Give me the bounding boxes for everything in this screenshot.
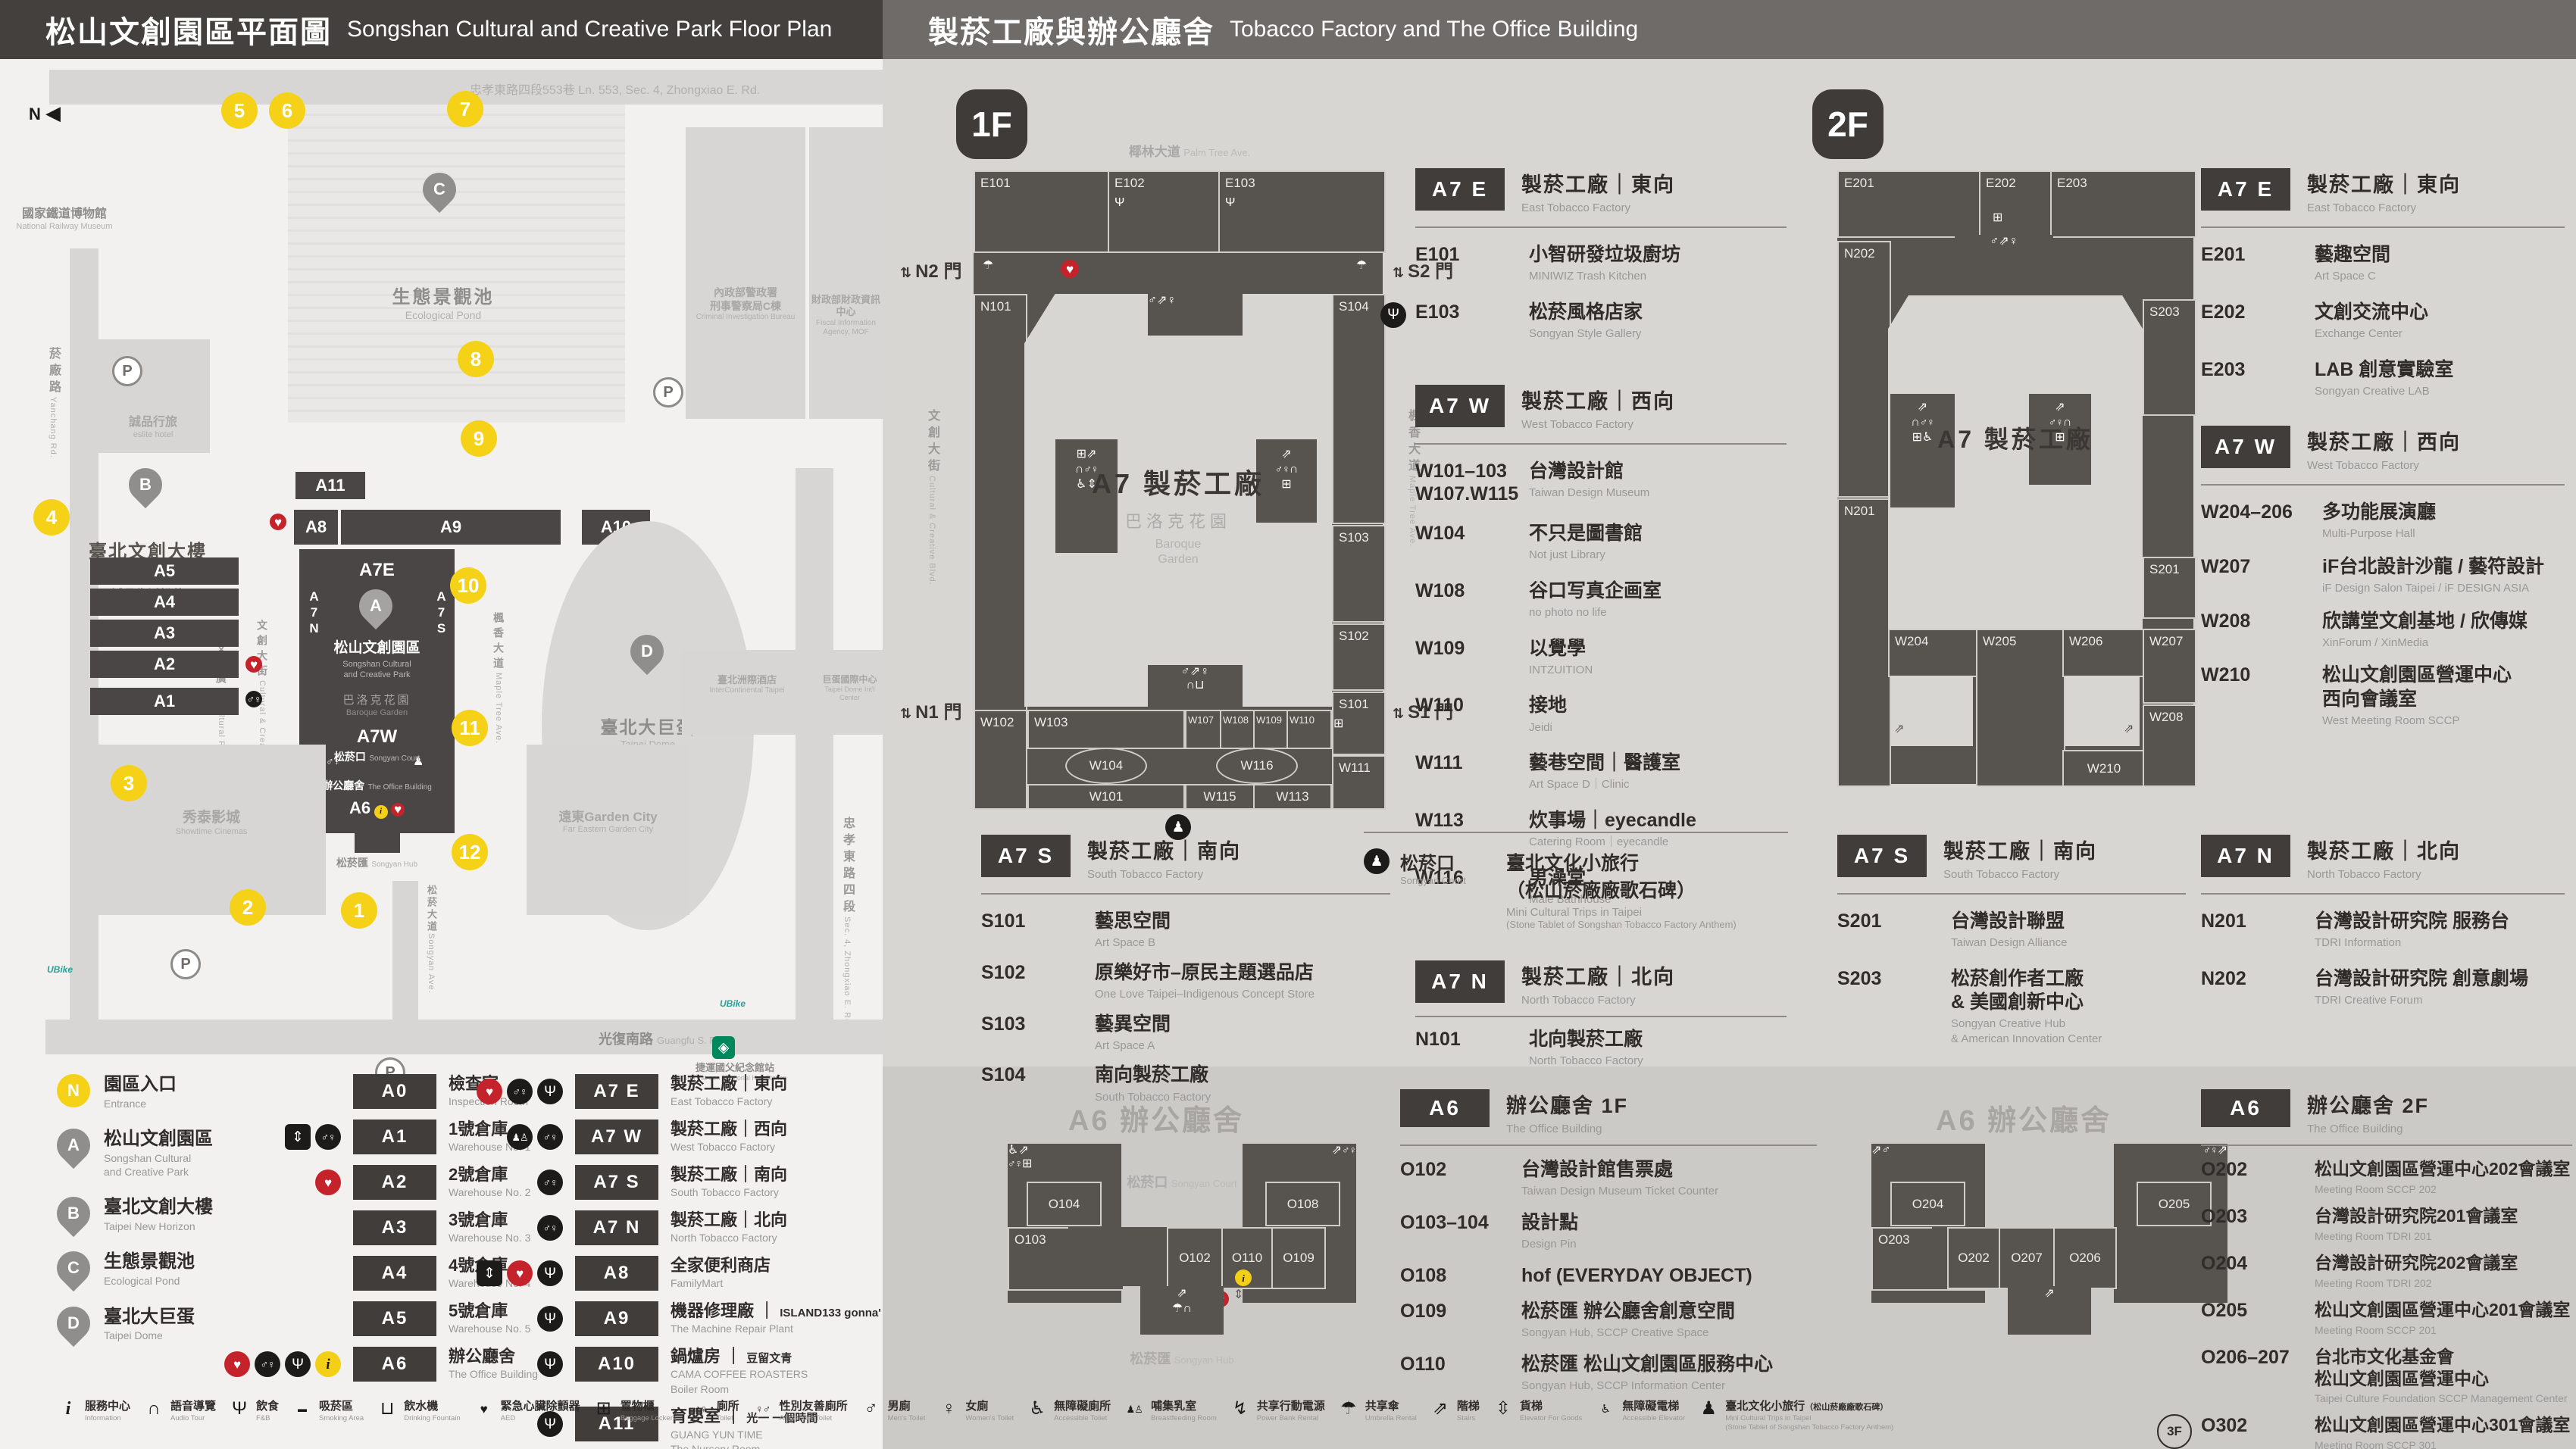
umbrella-icon	[1356, 260, 1367, 272]
facility-icon	[1123, 1397, 1146, 1420]
room-list-item: 3F O302 松山文創園區營運中心301會議室 Meeting Room SC…	[2201, 1414, 2572, 1449]
locker-icon	[1333, 718, 1343, 730]
drinking-icon	[1195, 679, 1204, 692]
facility-icon	[537, 1306, 563, 1332]
street-songyan-ave	[392, 881, 418, 1021]
entrance-12: 12	[452, 834, 488, 870]
room-s103: S103	[1332, 525, 1386, 623]
legend-icon-item: 緊急心臟除顫器 AED	[473, 1397, 580, 1422]
parking-icon: P	[112, 356, 142, 386]
facility-icon	[473, 1397, 496, 1420]
block-cib	[686, 127, 805, 419]
entrance-7: 7	[447, 91, 483, 127]
facility-icon	[1337, 1397, 1360, 1420]
entrance-1: 1	[341, 892, 377, 929]
building-a5: A5	[90, 557, 239, 585]
room-list-item: W110 接地 Jeidi	[1415, 694, 1787, 735]
maple-ave-label: 楓香大道Maple Tree Ave.	[491, 612, 506, 744]
room-w101: W101	[1027, 784, 1185, 810]
entrance-2: 2	[230, 889, 266, 926]
toilet-icon	[1342, 1145, 1356, 1155]
stairs-icon	[1190, 666, 1200, 678]
room-list-item: S201 台灣設計聯盟 Taiwan Design Alliance	[1837, 910, 2186, 951]
building-code-badge: A9	[575, 1301, 658, 1336]
facility-icon	[477, 1260, 502, 1286]
room-s102: S102	[1332, 623, 1386, 691]
street-guangfu	[45, 1020, 883, 1054]
legend-row: A7 N 製菸工廠｜北向 ｜ North Tobacco Factory	[474, 1210, 886, 1245]
room-w102: W102	[974, 710, 1027, 810]
accessible-icon	[1008, 1145, 1018, 1157]
room-w109: W109	[1253, 710, 1288, 749]
facility-icon	[315, 1170, 341, 1195]
street-yanchang-label: 菸廠路Yanchang Rd.	[44, 347, 62, 458]
building-a7-name: 松山文創園區 Songshan Cultural and Creative Pa…	[299, 639, 455, 680]
building-code-badge: A4	[353, 1256, 436, 1291]
room-e201: E201	[1837, 170, 1982, 238]
room-n202: N202	[1837, 241, 1891, 498]
legend-pin-row: D 臺北大巨蛋 Taipei Dome	[57, 1307, 246, 1343]
facility-icon	[537, 1351, 563, 1377]
room-list-item: E103 松菸風格店家 Songyan Style Gallery	[1415, 301, 1787, 342]
legend-pins: N 園區入口 Entrance A 松山文創園區 Songshan Cultur…	[57, 1074, 246, 1361]
room-o104: O104	[1027, 1182, 1102, 1226]
legend-pin-icon: C	[50, 1244, 97, 1291]
facility-icon	[592, 1397, 615, 1420]
room-list-item: E202 文創交流中心 Exchange Center	[2201, 301, 2565, 342]
facility-icon	[57, 1397, 80, 1420]
room-s203: S203	[2143, 299, 2196, 416]
room-list-item: W204–206 多功能展演廳 Multi-Purpose Hall	[2201, 501, 2565, 542]
facility-icon	[228, 1397, 251, 1420]
room-list-item: W109 以覺學 INTZUITION	[1415, 637, 1787, 678]
room-list-item: W207 iF台北設計沙龍 / 藝符設計 iF Design Salon Tai…	[2201, 555, 2565, 596]
building-code-badge: A0	[353, 1074, 436, 1109]
floor-2f-badge: 2F	[1812, 89, 1884, 159]
room-list-item: O108 hof (EVERYDAY OBJECT)	[1400, 1264, 1817, 1288]
mens-icon	[1881, 1145, 1890, 1157]
building-a3: A3	[90, 620, 239, 647]
womens-icon	[1167, 295, 1176, 307]
room-w107: W107	[1185, 710, 1221, 749]
building-a7-a7n-label: A7N	[306, 589, 321, 637]
building-code-badge: A3	[353, 1210, 436, 1245]
legend-pin-row: A 松山文創園區 Songshan Cultural and Creative …	[57, 1129, 246, 1179]
building-code-badge: A5	[353, 1301, 436, 1336]
room-o206: O206	[2053, 1227, 2117, 1289]
section-2f-a7e: A7 E 製菸工廠｜東向East Tobacco Factory E201 藝趣…	[2201, 168, 2565, 415]
pin-b: B	[122, 461, 169, 508]
facility-icon-legend: 服務中心 Information 語音導覽 Audio Tour 飲食 F&B	[57, 1397, 1633, 1432]
f2-open-cell	[2065, 676, 2140, 746]
room-e203: E203	[2050, 170, 2196, 238]
building-code-badge: A7 S	[575, 1165, 658, 1200]
elevator-icon	[1233, 1289, 1243, 1301]
room-n201: N201	[1837, 498, 1891, 787]
room-w208: W208	[2143, 704, 2196, 787]
room-w111: W111	[1332, 755, 1386, 810]
f1-garden-label: 巴洛克花園 Baroque Garden	[1024, 511, 1332, 567]
street-zhongxiao	[796, 468, 833, 1020]
legend-pin-row: C 生態景觀池 Ecological Pond	[57, 1251, 246, 1288]
street-zhongxiao-label: 忠孝東路四段Sec. 4, Zhongxiao E. Rd.	[838, 817, 856, 1027]
building-a6-stub	[355, 833, 400, 853]
room-o207: O207	[1999, 1227, 2055, 1289]
aed-icon	[391, 803, 405, 817]
room-w103: W103	[1027, 710, 1185, 749]
gate-n1: N1 門	[900, 697, 961, 723]
street-songyan-ave-label: 松菸大道Songyan Ave.	[424, 885, 439, 994]
section-title: 製菸工廠與辦公廳舍	[928, 8, 1215, 52]
legend-icon-item: 語音導覽 Audio Tour	[142, 1397, 216, 1422]
facility-icon	[537, 1079, 563, 1104]
f1-top-stub	[1148, 294, 1243, 336]
building-a1: A1	[90, 688, 239, 715]
a6f1-stub	[1140, 1286, 1224, 1335]
ecological-pond	[288, 105, 625, 423]
f1-blvd-label: 文創大街Cultural & Creative Blvd.	[923, 409, 941, 586]
stairs-icon	[2124, 723, 2134, 735]
room-list-item: W111 藝巷空間｜醫護室 Art Space D｜Clinic	[1415, 751, 1787, 792]
facility-icon	[537, 1215, 563, 1241]
room-w210: W210	[2062, 750, 2146, 787]
toilet-icon	[245, 691, 262, 707]
room-w204: W204	[1888, 629, 1979, 677]
womens-icon	[1200, 666, 1209, 678]
legend-icon-item: 男廁 Men's Toilet	[860, 1397, 926, 1422]
f1-palm-ave-label: 椰林大道 Palm Tree Ave.	[1099, 144, 1280, 161]
legend-row: A9 機器修理廠 ｜ ISLAND133 gonna' The Machine …	[474, 1301, 886, 1336]
block-fia	[809, 127, 883, 419]
room-list-item: O205 松山文創園區營運中心201會議室 Meeting Room SCCP …	[2201, 1299, 2572, 1337]
f1-center-title: A7 製菸工廠	[1024, 462, 1332, 501]
stairs-icon	[2044, 1288, 2054, 1300]
room-list-item: S102 原樂好市–原民主題選品店 One Love Taipei–Indige…	[981, 961, 1390, 1002]
audio-icon	[1183, 1303, 1192, 1315]
room-n101: N101	[974, 294, 1027, 711]
section-1f-a7e: A7 E 製菸工廠｜東向East Tobacco Factory E101 小智…	[1415, 168, 1787, 358]
block-garden-city-label: 遠東Garden City Far Eastern Garden City	[527, 809, 689, 835]
room-list-item: S103 藝異空間 Art Space A	[981, 1013, 1390, 1054]
stairs-icon	[1999, 236, 2009, 248]
section-a6-2f: A6 辦公廳舍 2FThe Office Building O202 松山文創園…	[2201, 1089, 2572, 1449]
compass-north: N ◀	[29, 101, 61, 125]
section-2f-a7s: A7 S 製菸工廠｜南向South Tobacco Factory S201 台…	[1837, 835, 2186, 1063]
floor-1f-map: E101 E102 E103 N101 S104 S103 S102 S101 …	[974, 170, 1383, 807]
building-a4: A4	[90, 589, 239, 616]
legend-pin-row: N 園區入口 Entrance	[57, 1074, 246, 1110]
locker-icon	[1077, 448, 1086, 461]
legend-icon-item: 服務中心 Information	[57, 1397, 130, 1422]
legend-icon-item: 女廁 Women's Toilet	[937, 1397, 1014, 1422]
building-code-badge: A7 W	[575, 1120, 658, 1154]
block-intercontinental-label: 臺北洲際酒店 InterContinental Taipei	[682, 674, 812, 696]
aed-icon	[245, 656, 262, 673]
room-list-item: S101 藝思空間 Art Space B	[981, 910, 1390, 951]
info-icon	[1235, 1269, 1252, 1286]
facility-icon	[315, 1351, 341, 1377]
header-right: 製菸工廠與辦公廳舍 Tobacco Factory and The Office…	[883, 0, 2576, 59]
f2-top-stub	[1955, 235, 2053, 280]
room-o204: O204	[1890, 1182, 1965, 1226]
section-2f-a7w: A7 W 製菸工廠｜西向West Tobacco Factory W204–20…	[2201, 426, 2565, 742]
room-s201: S201	[2143, 557, 2196, 619]
block-dome-intl-label: 巨蛋國際中心 Taipei Dome Int'l Center	[817, 674, 883, 703]
locker-icon	[1022, 1158, 1032, 1170]
facility-icon	[507, 1079, 533, 1104]
header-left: 松山文創園區平面圖 Songshan Cultural and Creative…	[0, 0, 883, 59]
facility-icon	[224, 1351, 250, 1377]
room-list-item: O110 松菸匯 松山文創園區服務中心 Songyan Hub, SCCP In…	[1400, 1353, 1817, 1394]
facility-icon	[1380, 302, 1406, 328]
legend-pin-icon: N	[57, 1074, 90, 1107]
legend-row: A7 W 製菸工廠｜西向 ｜ West Tobacco Factory	[474, 1120, 886, 1154]
stairs-icon	[1332, 1145, 1342, 1157]
ubike-mark: UBike	[47, 964, 73, 975]
audio-icon	[1186, 679, 1195, 692]
room-w104: W104	[1065, 748, 1147, 784]
parking-icon: P	[170, 949, 201, 979]
room-list-item: E101 小智研發垃圾廚坊 MINIWIZ Trash Kitchen	[1415, 243, 1787, 284]
legend-row: A8 全家便利商店 ｜ FamilyMart	[474, 1256, 886, 1291]
a6-2f-map: A6 辦公廳舍 O204 O203 O205 O202 O207 O206	[1849, 1089, 2250, 1377]
aed-icon	[1061, 260, 1079, 278]
room-list-item: O204 台灣設計研究院202會議室 Meeting Room TDRI 202	[2201, 1252, 2572, 1290]
legend-row: A10 鍋爐房 ｜ 豆留文青 CAMA COFFEE ROASTERS Boil…	[474, 1347, 886, 1396]
umbrella-icon	[1172, 1303, 1183, 1315]
building-code-badge: A7 N	[575, 1210, 658, 1245]
facility-icon	[291, 1397, 314, 1420]
facility-icon	[860, 1397, 883, 1420]
room-o202: O202	[1947, 1227, 2000, 1289]
metro-logo	[712, 1036, 735, 1059]
section-1f-a7n: A7 N 製菸工廠｜北向North Tobacco Factory N101 北…	[1415, 960, 1787, 1075]
floor-2f-map: E201 E202 E203 N202 N201 S203 S201 A7 製菸…	[1837, 170, 2193, 784]
entrance-8: 8	[458, 341, 494, 377]
legend-icon-item: 吸菸區 Smoking Area	[291, 1397, 364, 1422]
facility-icon	[285, 1124, 311, 1150]
block-cib-label: 內政部警政署 刑事警察局C棟 Criminal Investigation Bu…	[686, 286, 805, 323]
facility-icon	[376, 1397, 399, 1420]
stairs-icon	[2055, 401, 2065, 414]
a6f1-hub-label: 松菸匯 Songyan Hub	[1121, 1351, 1243, 1368]
womens-icon	[2009, 236, 2018, 248]
facility-icon	[507, 1124, 533, 1150]
stairs-icon	[1157, 295, 1167, 307]
parking-icon: P	[653, 377, 683, 408]
compass-arrow-icon: ◀	[45, 101, 61, 124]
entrance-6: 6	[269, 92, 305, 129]
entrance-4: 4	[33, 499, 70, 536]
legend-icon-item: 置物櫃 Baggage Lockers	[592, 1397, 677, 1422]
legend-icon-item: 飲食 F&B	[228, 1397, 279, 1422]
mens-icon	[1990, 236, 1999, 248]
room-list-item: O102 台灣設計館售票處 Taiwan Design Museum Ticke…	[1400, 1158, 1817, 1199]
room-list-item: W104 不只是圖書館 Not just Library	[1415, 522, 1787, 563]
street-top-label: 忠孝東路四段553巷 Ln. 553, Sec. 4, Zhongxiao E.…	[470, 80, 879, 98]
aed-icon	[270, 514, 286, 530]
facility-icon	[537, 1124, 563, 1150]
gate-n2: N2 門	[900, 256, 961, 283]
restaurant-icon	[1114, 197, 1124, 209]
room-list-item: W210 松山文創園區營運中心西向會議室 West Meeting Room S…	[2201, 664, 2565, 728]
page-title: 松山文創園區平面圖	[45, 8, 332, 52]
building-code-badge: A1	[353, 1120, 436, 1154]
entrance-11: 11	[452, 710, 488, 746]
building-code-badge: A10	[575, 1347, 658, 1382]
legend-pin-icon: D	[50, 1300, 97, 1347]
a6-1f-map: A6 辦公廳舍 O104 O103 O108 松菸口 Songyan Court…	[985, 1089, 1379, 1377]
legend-row: A7 S 製菸工廠｜南向 ｜ South Tobacco Factory	[474, 1165, 886, 1200]
section-2f-a7n: A7 N 製菸工廠｜北向North Tobacco Factory N201 台…	[2201, 835, 2565, 1025]
room-list-item: N201 台灣設計研究院 服務台 TDRI Information	[2201, 910, 2565, 951]
room-o102: O102	[1167, 1227, 1223, 1289]
building-code-badge: A2	[353, 1165, 436, 1200]
stairs-icon	[1918, 401, 1927, 414]
facility-icon	[255, 1351, 280, 1377]
locker-icon	[1993, 212, 2002, 224]
stairs-icon	[1086, 448, 1096, 461]
room-w108: W108	[1220, 710, 1255, 749]
f2-center-title: A7 製菸工廠	[1888, 420, 2143, 455]
building-a7-a7e-label: A7E	[299, 559, 455, 582]
section-badge: A7 E	[1415, 168, 1505, 211]
legend-icon-item: 性別友善廁所 All Gender Toilet	[752, 1397, 848, 1422]
floor-1f-badge: 1F	[956, 89, 1027, 159]
room-list-item: O103–104 設計點 Design Pin	[1400, 1211, 1817, 1252]
room-s101: S101	[1332, 692, 1386, 755]
room-list-item: W101–103W107.W115 台灣設計館 Taiwan Design Mu…	[1415, 460, 1787, 505]
room-w207: W207	[2143, 629, 2196, 704]
mens-icon	[1181, 666, 1190, 678]
building-a2: A2	[90, 651, 239, 678]
f2-open-cell	[1891, 676, 1973, 746]
room-e101: E101	[974, 170, 1111, 253]
entrance-3: 3	[111, 765, 147, 801]
legend-pin-icon: B	[50, 1190, 97, 1237]
room-w116: W116	[1216, 748, 1298, 784]
restaurant-icon	[1225, 197, 1235, 209]
legend-buildings-2: A7 E 製菸工廠｜東向 ｜ East Tobacco Factory A7 W…	[474, 1074, 886, 1449]
ubike-mark: UBike	[720, 998, 746, 1009]
room-list-item: O202 松山文創園區營運中心202會議室 Meeting Room SCCP …	[2201, 1158, 2572, 1196]
room-list-item: E201 藝趣空間 Art Space C	[2201, 243, 2565, 284]
pedestrian-icon	[1364, 848, 1390, 874]
street-guangfu-label: 光復南路 Guangfu S. Rd.	[599, 1029, 725, 1048]
facility-icon	[507, 1260, 533, 1286]
building-code-badge: A7 E	[575, 1074, 658, 1109]
eslite-hotel-label: 誠品行旅 eslite hotel	[96, 415, 210, 441]
section-1f-a7s: A7 S 製菸工廠｜南向South Tobacco Factory S101 藝…	[981, 835, 1390, 1115]
section-a6-1f: A6 辦公廳舍 1FThe Office Building O102 台灣設計館…	[1400, 1089, 1817, 1405]
room-e202: E202	[1979, 170, 2053, 238]
facility-icon	[477, 1079, 502, 1104]
legend-icon-item: 共享行動電源 Power Bank Rental	[1229, 1397, 1325, 1422]
umbrella-icon	[983, 260, 993, 272]
room-w113: W113	[1253, 784, 1332, 810]
room-e102: E102	[1108, 170, 1221, 253]
room-list-item: O109 松菸匯 辦公廳舍創意空間 Songyan Hub, SCCP Crea…	[1400, 1300, 1817, 1341]
building-a8: A8	[294, 510, 338, 545]
mens-icon	[1148, 295, 1157, 307]
entrance-9: 9	[461, 420, 497, 457]
legend-pin-row: B 臺北文創大樓 Taipei New Horizon	[57, 1197, 246, 1233]
legend-icon-item: 飲水機 Drinking Fountain	[376, 1397, 460, 1422]
entrance-5: 5	[221, 92, 258, 129]
facility-icon	[1026, 1397, 1049, 1420]
floor-plan-poster: 松山文創園區平面圖 Songshan Cultural and Creative…	[0, 0, 2576, 1449]
stairs-icon	[1177, 1288, 1186, 1300]
block-showtime-label: 秀泰影城 Showtime Cinemas	[97, 809, 326, 838]
info-icon	[374, 805, 388, 819]
pond-label: 生態景觀池 Ecological Pond	[356, 286, 530, 323]
a6f2-stub	[2008, 1286, 2091, 1335]
facility-icon	[937, 1397, 960, 1420]
entrance-10: 10	[450, 567, 486, 604]
stairs-icon	[1018, 1145, 1028, 1157]
building-code-badge: A8	[575, 1256, 658, 1291]
facility-icon	[752, 1397, 774, 1420]
facility-icon	[315, 1124, 341, 1150]
facility-icon	[142, 1397, 165, 1420]
stairs-icon	[1281, 448, 1291, 461]
building-a9: A9	[341, 510, 561, 545]
room-list-item: N202 台灣設計研究院 創意劇場 TDRI Creative Forum	[2201, 967, 2565, 1008]
block-fia-label: 財政部財政資訊中心 Fiscal Information Agency, MOF	[809, 294, 883, 338]
landmark-railway-museum: 國家鐵道博物館 National Railway Museum	[0, 207, 129, 233]
building-a7-a7s-label: A7S	[433, 589, 449, 637]
building-code-badge: A6	[353, 1347, 436, 1382]
room-o109: O109	[1271, 1227, 1326, 1289]
legend-pin-icon: A	[50, 1122, 97, 1169]
legend-icon-item: 廁所 Toilet	[689, 1397, 739, 1422]
facility-icon	[285, 1351, 311, 1377]
stairs-icon	[1894, 723, 1904, 735]
facility-icon	[1229, 1397, 1252, 1420]
room-s104: S104	[1332, 294, 1386, 524]
room-list-item: O206–207 台北市文化基金會松山文創園區營運中心 Taipei Cultu…	[2201, 1346, 2572, 1406]
room-w110: W110	[1286, 710, 1332, 749]
a6-map-title: A6 辦公廳舍	[1936, 1097, 2112, 1138]
room-o108: O108	[1265, 1182, 1340, 1226]
floor-3f-badge: 3F	[2157, 1414, 2192, 1449]
room-list-item: E203 LAB 創意實驗室 Songyan Creative LAB	[2201, 358, 2565, 399]
legend-icon-item: 無障礙廁所 Accessible Toilet	[1026, 1397, 1111, 1422]
toilet-icon	[1008, 1158, 1022, 1169]
room-list-item: O203 台灣設計研究院201會議室 Meeting Room TDRI 201	[2201, 1205, 2572, 1243]
room-w206: W206	[2062, 629, 2146, 677]
facility-icon	[537, 1260, 563, 1286]
f1-bottom-stub	[1148, 665, 1243, 707]
room-list-item: S203 松菸創作者工廠& 美國創新中心 Songyan Creative Hu…	[1837, 967, 2186, 1047]
room-list-item: W108 谷口写真企画室 no photo no life	[1415, 579, 1787, 620]
room-w115: W115	[1185, 784, 1255, 810]
facility-icon	[689, 1397, 711, 1420]
legend-icon-item: 哺集乳室 Breastfeeding Room	[1123, 1397, 1217, 1422]
building-a11: A11	[295, 472, 365, 499]
a6-map-title: A6 辦公廳舍	[1068, 1097, 1244, 1138]
facility-icon	[537, 1170, 563, 1195]
baroque-garden-label: 巴洛克花園 Baroque Garden	[299, 694, 455, 719]
a6f1-court-label: 松菸口 Songyan Court	[1121, 1174, 1243, 1191]
stairs-icon	[1871, 1145, 1881, 1157]
room-w205: W205	[1976, 629, 2065, 787]
room-e103: E103	[1218, 170, 1386, 253]
park-map: 忠孝東路四段553巷 Ln. 553, Sec. 4, Zhongxiao E.…	[0, 59, 883, 1066]
room-list-item: W208 欣講堂文創基地 / 欣傳媒 XinForum / XinMedia	[2201, 610, 2565, 651]
legend-row: A7 E 製菸工廠｜東向 ｜ East Tobacco Factory	[474, 1074, 886, 1109]
section-1f-court: 松菸口 Songyan Court 臺北文化小旅行 （松山菸廠廠歌石碑） Min…	[1364, 832, 1788, 930]
